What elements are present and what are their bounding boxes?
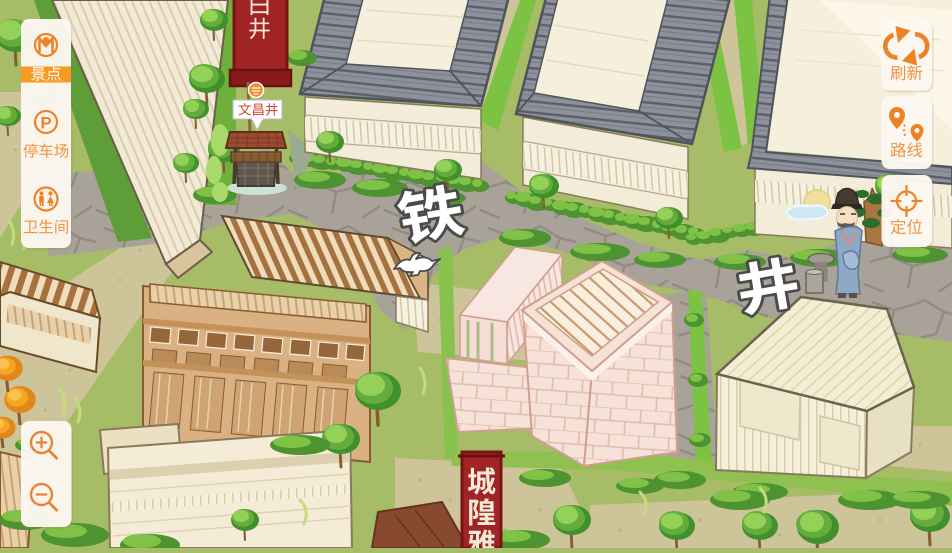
svg-text:P: P <box>40 114 51 133</box>
